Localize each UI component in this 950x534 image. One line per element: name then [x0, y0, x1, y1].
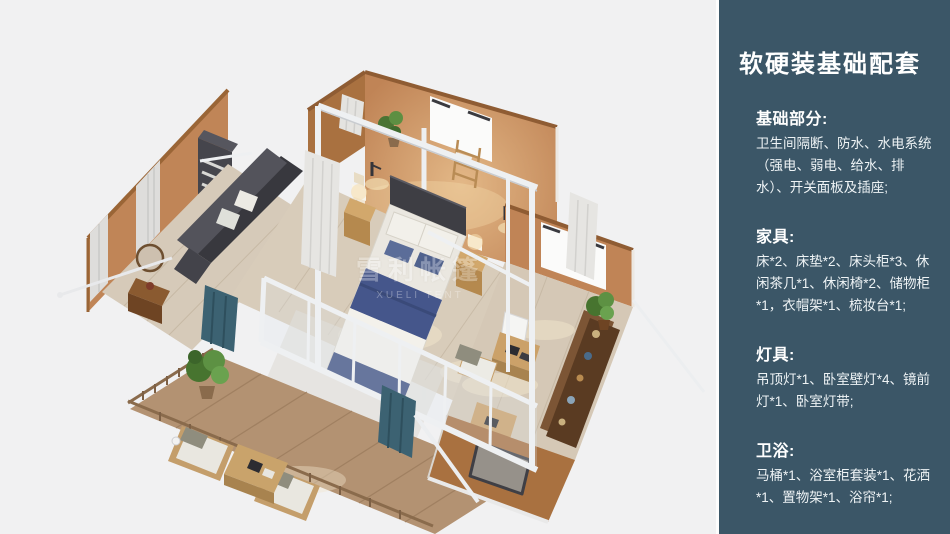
section-heading: 基础部分: [756, 105, 938, 129]
section-body: 床*2、床垫*2、床头柜*3、休闲茶几*1、休闲椅*2、储物柜*1，衣帽架*1、… [756, 251, 938, 317]
section-body: 吊顶灯*1、卧室壁灯*4、镜前灯*1、卧室灯带; [756, 369, 938, 413]
curtain [566, 192, 598, 280]
sidebar-title: 软硬装基础配套 [739, 44, 938, 79]
section-basics: 基础部分: 卫生间隔断、防水、水电系统（强电、弱电、给水、排水）、开关面板及插座… [756, 105, 938, 199]
deck-light [172, 437, 180, 445]
section-heading: 卫浴: [756, 437, 938, 461]
section-furniture: 家具: 床*2、床垫*2、床头柜*3、休闲茶几*1、休闲椅*2、储物柜*1，衣帽… [756, 223, 938, 317]
interior-render [0, 0, 716, 534]
section-lighting: 灯具: 吊顶灯*1、卧室壁灯*4、镜前灯*1、卧室灯带; [756, 341, 938, 413]
section-body: 卫生间隔断、防水、水电系统（强电、弱电、给水、排水）、开关面板及插座; [756, 133, 938, 199]
section-heading: 家具: [756, 223, 938, 247]
section-body: 马桶*1、浴室柜套装*1、花洒*1、置物架*1、浴帘*1; [756, 465, 938, 509]
section-bathroom: 卫浴: 马桶*1、浴室柜套装*1、花洒*1、置物架*1、浴帘*1; [756, 437, 938, 509]
sidebar-sections: 基础部分: 卫生间隔断、防水、水电系统（强电、弱电、给水、排水）、开关面板及插座… [739, 105, 938, 534]
slide: 雪利帐篷 XUELI TENT 软硬装基础配套 基础部分: 卫生间隔断、防水、水… [0, 0, 950, 534]
info-sidebar: 软硬装基础配套 基础部分: 卫生间隔断、防水、水电系统（强电、弱电、给水、排水）… [716, 0, 950, 534]
section-heading: 灯具: [756, 341, 938, 365]
